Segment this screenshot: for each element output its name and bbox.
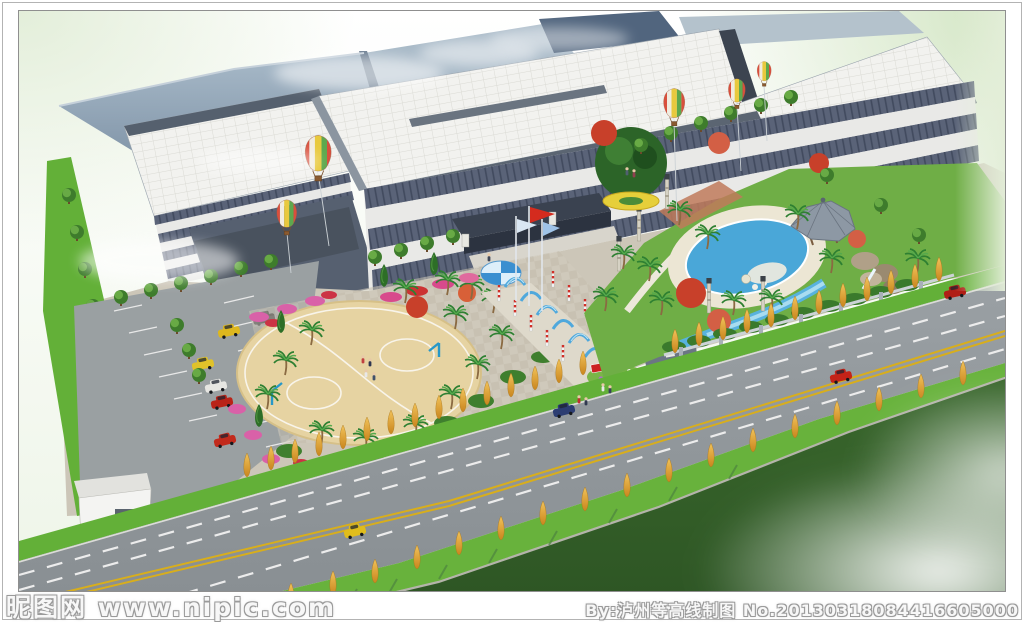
watermark-left: 昵图网 www.nipic.com [6,588,336,622]
maple-tree [406,296,428,318]
page: 昵图网 www.nipic.com By:泸州等高线制图 No.20130318… [0,0,1024,622]
watermark-right: By:泸州等高线制图 No.20130318084416605000 [585,597,1019,621]
parasol [742,275,751,284]
statue-left [462,234,469,247]
architectural-rendering [19,11,1005,591]
render-frame [18,10,1006,592]
